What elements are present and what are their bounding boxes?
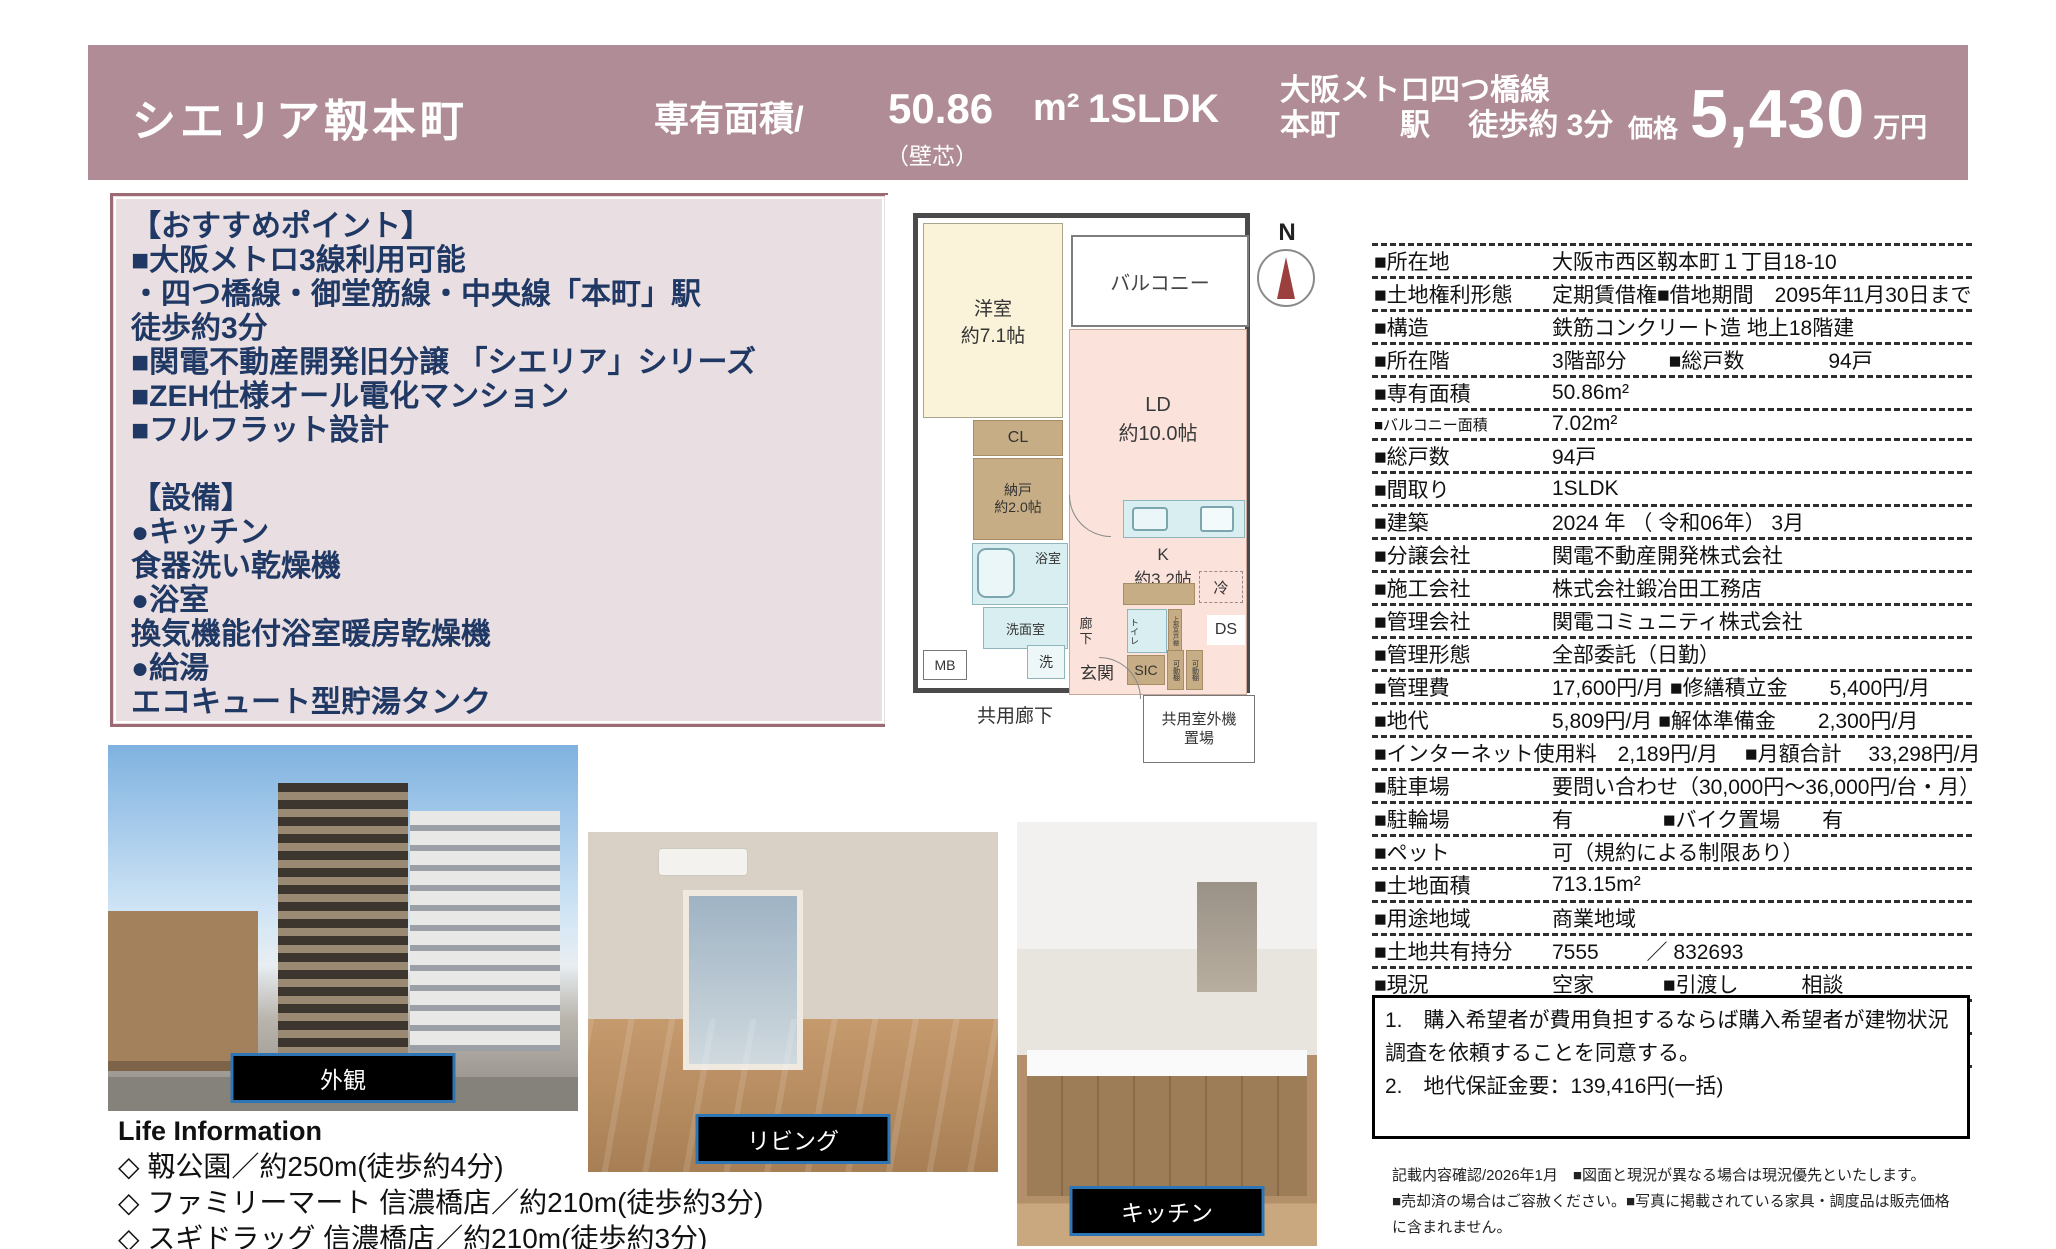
exterior-building-left	[108, 911, 258, 1071]
table-row-label: ■構造	[1374, 312, 1552, 342]
toilet-label: トイレ	[1128, 618, 1141, 645]
table-row-label: ■専有面積	[1374, 378, 1552, 408]
highlight-line: 【設備】	[131, 482, 867, 516]
table-row-label: ■駐車場	[1374, 771, 1552, 801]
table-row-label: ■管理会社	[1374, 606, 1552, 636]
highlight-line	[131, 448, 867, 482]
room-western: 洋室 約7.1帖	[923, 223, 1063, 418]
table-row: ■土地面積713.15m²	[1372, 867, 1972, 900]
table-row-text: ■インターネット使用料 2,189円/月 ■月額合計 33,298円/月	[1374, 738, 1981, 768]
remark-line: 2. 地代保証金要：139,416円(一括)	[1385, 1070, 1957, 1103]
table-row: ■構造鉄筋コンクリート造 地上18階建	[1372, 309, 1972, 342]
range-hood-icon	[1197, 882, 1257, 992]
table-row: ■所在地大阪市西区靱本町１丁目18-10	[1372, 243, 1972, 276]
highlight-line: ●浴室	[131, 584, 867, 618]
exterior-photo-label: 外観	[231, 1053, 456, 1103]
table-row-label: ■土地権利形態	[1374, 279, 1552, 309]
table-row: ■用途地域商業地域	[1372, 900, 1972, 933]
life-item: ◇ スギドラッグ 信濃橋店／約210m(徒歩約3分)	[118, 1221, 898, 1249]
table-row-value: 1SLDK	[1552, 477, 1970, 501]
table-row-value: 株式会社鍛冶田工務店	[1552, 573, 1970, 603]
area-note: （壁芯）	[886, 137, 978, 171]
table-row-value: 50.86m²	[1552, 381, 1970, 405]
remark-line: 1. 購入希望者が費用負担するならば購入希望者が建物状況調査を依頼することを同意…	[1385, 1004, 1957, 1070]
table-row-value: 713.15m²	[1552, 873, 1970, 897]
table-row: ■土地共有持分7555 ／ 832693	[1372, 933, 1972, 966]
highlight-line: ■フルフラット設計	[131, 414, 867, 448]
kitchen-counter-top	[1027, 1050, 1307, 1076]
fine-print-line: ■売却済の場合はご容赦ください。■写真に掲載されている家具・調度品は販売価格に含…	[1392, 1189, 1962, 1241]
life-item: ◇ 靱公園／約250m(徒歩約4分)	[118, 1149, 898, 1185]
compass-circle	[1257, 249, 1315, 307]
room-balcony: バルコニー	[1071, 235, 1249, 327]
table-row-label: ■所在地	[1374, 246, 1552, 276]
table-row-value: 5,809円/月 ■解体準備金 2,300円/月	[1552, 705, 1970, 735]
room-hallway: 廊 下	[1071, 609, 1101, 653]
table-row: ■管理費17,600円/月 ■修繕積立金 5,400円/月	[1372, 669, 1972, 702]
movable-shelf: 可動棚	[1186, 650, 1203, 690]
upper-shelf-label: 上部吊戸棚	[1171, 616, 1180, 646]
details-table: ■所在地大阪市西区靱本町１丁目18-10■土地権利形態定期賃借権■借地期間 20…	[1372, 243, 1972, 1068]
area-value: 50.86	[888, 85, 993, 133]
upper-shelf: 上部吊戸棚	[1168, 609, 1182, 653]
table-row-value: 7555 ／ 832693	[1552, 936, 1970, 966]
flyer-page: シエリア靱本町 専有面積/ 50.86 m² （壁芯） 1SLDK 大阪メトロ四…	[0, 0, 2056, 1249]
table-row: ■インターネット使用料 2,189円/月 ■月額合計 33,298円/月	[1372, 735, 1972, 768]
highlights-box: 【おすすめポイント】■大阪メトロ3線利用可能・四つ橋線・御堂筋線・中央線「本町」…	[110, 193, 888, 727]
table-row: ■バルコニー面積7.02m²	[1372, 408, 1972, 438]
highlight-line: 【おすすめポイント】	[131, 210, 867, 244]
price-unit: 万円	[1873, 106, 1927, 145]
table-row: ■施工会社株式会社鍛冶田工務店	[1372, 570, 1972, 603]
table-row: ■現況空家 ■引渡し 相談	[1372, 966, 1972, 999]
kitchen-photo-label: キッチン	[1070, 1186, 1265, 1236]
table-row-label: ■土地面積	[1374, 870, 1552, 900]
table-row-label: ■分譲会社	[1374, 540, 1552, 570]
outdoor-unit-space: 共用室外機 置場	[1143, 695, 1255, 763]
table-row-label: ■地代	[1374, 705, 1552, 735]
table-row-value: 関電コミュニティ株式会社	[1552, 606, 1970, 636]
table-row-value: 大阪市西区靱本町１丁目18-10	[1552, 246, 1970, 276]
floorplan: 洋室 約7.1帖 バルコニー LD 約10.0帖 K 約3.2帖 冷 CL 納戸…	[885, 195, 1345, 807]
highlight-line: 徒歩約3分	[131, 312, 867, 346]
table-row-value: 17,600円/月 ■修繕積立金 5,400円/月	[1552, 672, 1970, 702]
table-row-label: ■ペット	[1374, 837, 1552, 867]
remarks-box: 1. 購入希望者が費用負担するならば購入希望者が建物状況調査を依頼することを同意…	[1372, 995, 1970, 1139]
table-row-label: ■管理費	[1374, 672, 1552, 702]
highlight-line: エコキュート型貯湯タンク	[131, 686, 867, 720]
fine-print-line: 記載内容確認/2026年1月 ■図面と現況が異なる場合は現況優先といたします。	[1392, 1163, 1962, 1189]
highlight-line: 食器洗い乾燥機	[131, 550, 867, 584]
highlight-line: 換気機能付浴室暖房乾燥機	[131, 618, 867, 652]
life-information: Life Information ◇ 靱公園／約250m(徒歩約4分)◇ ファミ…	[118, 1116, 898, 1249]
table-row-value: 定期賃借権■借地期間 2095年11月30日まで	[1552, 279, 1970, 309]
duct-space: DS	[1207, 615, 1245, 645]
aircon-icon	[658, 848, 748, 876]
table-row-label: ■駐輪場	[1374, 804, 1552, 834]
stove-icon	[1200, 506, 1234, 532]
area-unit: m²	[1033, 87, 1079, 130]
table-row-value: 商業地域	[1552, 903, 1970, 933]
movable-shelf-label: 可動棚	[1190, 660, 1200, 681]
table-row-label: ■土地共有持分	[1374, 936, 1552, 966]
kitchen-cabinet	[1123, 583, 1195, 605]
table-row-value: 2024 年 （ 令和06年） 3月	[1552, 507, 1970, 537]
table-row-label: ■総戸数	[1374, 441, 1552, 471]
station-access: 大阪メトロ四つ橋線 本町 駅 徒歩約 3分	[1280, 73, 1613, 143]
table-row: ■管理会社関電コミュニティ株式会社	[1372, 603, 1972, 636]
table-row-label: ■管理形態	[1374, 639, 1552, 669]
station-line: 大阪メトロ四つ橋線	[1280, 73, 1613, 108]
table-row-label: ■バルコニー面積	[1374, 414, 1552, 435]
room-living-dining-label: LD 約10.0帖	[1069, 385, 1247, 455]
fridge-space: 冷	[1199, 571, 1243, 603]
exterior-photo: 外観	[108, 745, 578, 1111]
table-row-label: ■間取り	[1374, 474, 1552, 504]
table-row-value: 関電不動産開発株式会社	[1552, 540, 1970, 570]
life-information-title: Life Information	[118, 1116, 898, 1147]
table-row-value: 94戸	[1552, 441, 1970, 471]
table-row: ■土地権利形態定期賃借権■借地期間 2095年11月30日まで	[1372, 276, 1972, 309]
room-storage: 納戸 約2.0帖	[973, 458, 1063, 540]
washer-space: 洗	[1027, 645, 1065, 679]
kitchen-photo: キッチン	[1017, 822, 1317, 1246]
price-group: 価格 5,430 万円	[1628, 75, 1927, 153]
highlight-line: ■大阪メトロ3線利用可能	[131, 244, 867, 278]
table-row: ■所在階3階部分 ■総戸数 94戸	[1372, 342, 1972, 375]
table-row: ■分譲会社関電不動産開発株式会社	[1372, 537, 1972, 570]
highlight-line: ■関電不動産開発旧分譲 「シエリア」シリーズ	[131, 346, 867, 380]
table-row: ■管理形態全部委託（日勤）	[1372, 636, 1972, 669]
area-label: 専有面積/	[654, 91, 804, 142]
table-row-value: 全部委託（日勤）	[1552, 639, 1970, 669]
table-row: ■専有面積50.86m²	[1372, 375, 1972, 408]
meter-box: MB	[923, 650, 967, 680]
table-row-label: ■施工会社	[1374, 573, 1552, 603]
compass-needle-icon	[1277, 257, 1295, 299]
table-row-value: 空家 ■引渡し 相談	[1552, 969, 1970, 999]
table-row-label: ■用途地域	[1374, 903, 1552, 933]
compass: N	[1257, 219, 1317, 307]
highlight-line: ■ZEH仕様オール電化マンション	[131, 380, 867, 414]
exterior-building-main	[278, 783, 408, 1083]
property-title: シエリア靱本町	[132, 85, 468, 149]
price-value: 5,430	[1690, 75, 1865, 153]
room-toilet: トイレ	[1127, 609, 1167, 653]
table-row: ■駐輪場有 ■バイク置場 有	[1372, 801, 1972, 834]
table-row-label: ■建築	[1374, 507, 1552, 537]
table-row: ■地代5,809円/月 ■解体準備金 2,300円/月	[1372, 702, 1972, 735]
table-row: ■ペット可（規約による制限あり）	[1372, 834, 1972, 867]
life-item: ◇ ファミリーマート 信濃橋店／約210m(徒歩約3分)	[118, 1185, 898, 1221]
room-washroom: 洗面室	[983, 607, 1068, 649]
kitchen-counter	[1123, 500, 1245, 538]
kitchen-cabinets	[1027, 1076, 1307, 1196]
fine-print: 記載内容確認/2026年1月 ■図面と現況が異なる場合は現況優先といたします。■…	[1392, 1163, 1962, 1241]
common-corridor-label: 共用廊下	[940, 700, 1090, 728]
table-row-value: 鉄筋コンクリート造 地上18階建	[1552, 312, 1970, 342]
sink-icon	[1132, 507, 1168, 531]
table-row: ■建築2024 年 （ 令和06年） 3月	[1372, 504, 1972, 537]
table-row: ■総戸数94戸	[1372, 438, 1972, 471]
layout-type: 1SLDK	[1088, 87, 1219, 132]
life-information-list: ◇ 靱公園／約250m(徒歩約4分)◇ ファミリーマート 信濃橋店／約210m(…	[118, 1149, 898, 1249]
table-row-label: ■現況	[1374, 969, 1552, 999]
table-row-value: 要問い合わせ（30,000円～36,000円/台・月）	[1552, 771, 1970, 801]
station-walk: 本町 駅 徒歩約 3分	[1280, 108, 1613, 143]
highlight-line: ・四つ橋線・御堂筋線・中央線「本町」駅	[131, 278, 867, 312]
table-row-value: 有 ■バイク置場 有	[1552, 804, 1970, 834]
exterior-building-right	[410, 811, 560, 1051]
compass-north-label: N	[1257, 219, 1317, 247]
table-row-label: ■所在階	[1374, 345, 1552, 375]
table-row-value: 3階部分 ■総戸数 94戸	[1552, 345, 1970, 375]
table-row: ■間取り1SLDK	[1372, 471, 1972, 504]
highlight-line: ●給湯	[131, 652, 867, 686]
table-row: ■駐車場要問い合わせ（30,000円～36,000円/台・月）	[1372, 768, 1972, 801]
highlight-line: ●キッチン	[131, 516, 867, 550]
movable-shelf: 可動棚	[1167, 650, 1184, 690]
header-band: シエリア靱本町 専有面積/ 50.86 m² （壁芯） 1SLDK 大阪メトロ四…	[88, 45, 1968, 180]
room-closet: CL	[973, 420, 1063, 456]
table-row-value: 7.02m²	[1552, 412, 1970, 436]
price-label: 価格	[1628, 109, 1678, 145]
movable-shelf-label: 可動棚	[1171, 660, 1181, 681]
table-row-value: 可（規約による制限あり）	[1552, 837, 1970, 867]
bathtub-icon	[977, 548, 1015, 598]
